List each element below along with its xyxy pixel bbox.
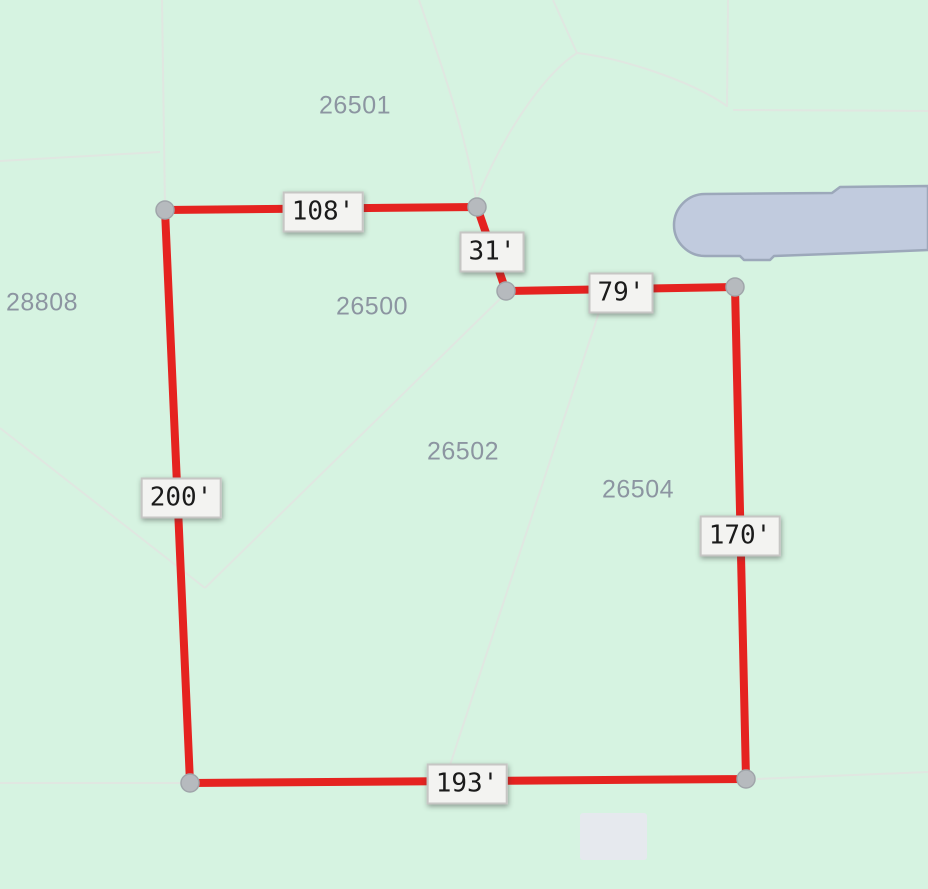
vertex-handle[interactable] bbox=[497, 282, 515, 300]
water-body bbox=[674, 186, 928, 260]
dimension-label-193ft: 193' bbox=[427, 764, 508, 805]
parcel-label-26500: 26500 bbox=[336, 293, 408, 322]
faint-parcel-line bbox=[757, 772, 928, 779]
vertex-handle[interactable] bbox=[181, 774, 199, 792]
parcel-label-28808: 28808 bbox=[6, 289, 78, 318]
faint-parcel-line bbox=[0, 152, 160, 161]
building-footprint bbox=[580, 813, 647, 860]
vertex-handle[interactable] bbox=[156, 201, 174, 219]
faint-parcel-line bbox=[162, 0, 165, 208]
parcel-label-26502: 26502 bbox=[427, 438, 499, 467]
dimension-label-31ft: 31' bbox=[460, 232, 525, 273]
faint-parcel-line bbox=[553, 0, 577, 53]
dimension-label-170ft: 170' bbox=[700, 516, 781, 557]
vertex-handle[interactable] bbox=[737, 770, 755, 788]
faint-parcel-line bbox=[727, 0, 728, 107]
faint-parcel-line bbox=[733, 110, 928, 111]
dimension-label-200ft: 200' bbox=[141, 478, 222, 519]
vertex-handle[interactable] bbox=[468, 198, 486, 216]
faint-parcel-line bbox=[478, 53, 577, 196]
map-canvas[interactable]: 26501 28808 26500 26502 26504 108' 31' 7… bbox=[0, 0, 928, 889]
faint-parcel-line bbox=[577, 53, 727, 106]
parcel-label-26501: 26501 bbox=[319, 92, 391, 121]
dimension-label-79ft: 79' bbox=[589, 273, 654, 314]
vertex-handle[interactable] bbox=[726, 278, 744, 296]
dimension-label-108ft: 108' bbox=[283, 192, 364, 233]
parcel-label-26504: 26504 bbox=[602, 476, 674, 505]
faint-parcel-line bbox=[419, 0, 477, 205]
faint-parcel-line bbox=[450, 300, 603, 765]
